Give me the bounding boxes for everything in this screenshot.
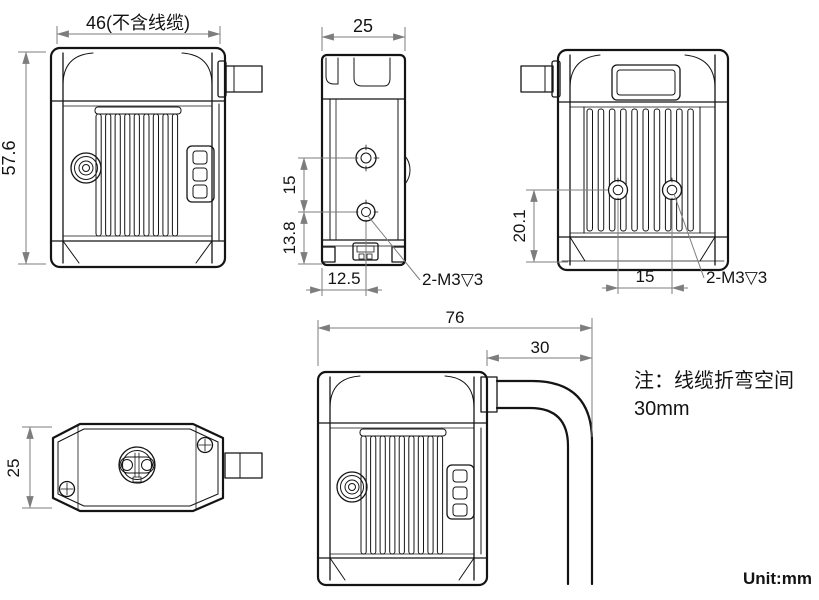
drawing-svg: 46(不含线缆) 57.6 [0,0,819,600]
back-view: 20.1 15 2-M3▽3 [510,50,767,294]
note-text: 注：线缆折弯空间 30mm [634,369,794,420]
cable-stub [225,453,262,478]
lens-top-icon [119,447,155,483]
dim-top-depth: 25 [4,427,52,508]
dim-side-depth: 25 [322,16,405,51]
dim-front-height-label: 57.6 [0,140,19,175]
note-line2: 30mm [634,398,690,420]
thread-callout-side: 2-M3▽3 [368,216,483,289]
bent-cable [481,377,592,584]
mount-hole [60,482,75,497]
dim-side-depth-label: 25 [353,16,373,36]
dim-back-hole-spacing-label: 15 [636,267,655,286]
dim-front-width: 46(不含线缆) [57,13,220,44]
dim-top-depth-label: 25 [4,459,23,478]
side-view: 25 15 13.8 12.5 2-M3▽3 [280,16,483,296]
mount-holes [609,178,682,202]
dim-front-height: 57.6 [0,52,46,264]
lens-icon [337,472,367,502]
unit-label: Unit:mm [743,569,812,588]
thread-callout-side-label: 2-M3▽3 [422,270,483,289]
front-view: 46(不含线缆) 57.6 [0,13,262,267]
dim-front-width-label: 46(不含线缆) [86,13,190,33]
cable-view: 76 30 [318,308,592,585]
dim-hole-offset-label: 12.5 [327,269,360,288]
dimension-drawing: 46(不含线缆) 57.6 [0,0,819,600]
heatsink-fins [360,429,446,554]
io-connector [447,465,474,519]
dim-cable-bend: 30 [487,338,592,366]
dim-total-length-label: 76 [446,308,465,327]
dim-back-hole-bottom-label: 20.1 [510,209,529,242]
cable-stub [521,61,560,97]
mount-hole [198,438,213,453]
dim-hole-bottom-label: 13.8 [280,221,299,254]
note-line1: 注：线缆折弯空间 [634,369,794,392]
top-view: 25 [4,424,262,511]
dim-cable-bend-label: 30 [531,338,550,357]
mount-hole [353,145,379,171]
heatsink-fins [584,107,700,233]
dim-hole-spacing-label: 15 [280,176,299,195]
mount-hole [354,200,378,224]
thread-callout-back-label: 2-M3▽3 [706,268,767,287]
label-window [612,65,680,100]
heatsink-fins [95,107,181,236]
io-connector [187,146,214,202]
dim-side-hole-chain: 15 13.8 [280,158,356,264]
